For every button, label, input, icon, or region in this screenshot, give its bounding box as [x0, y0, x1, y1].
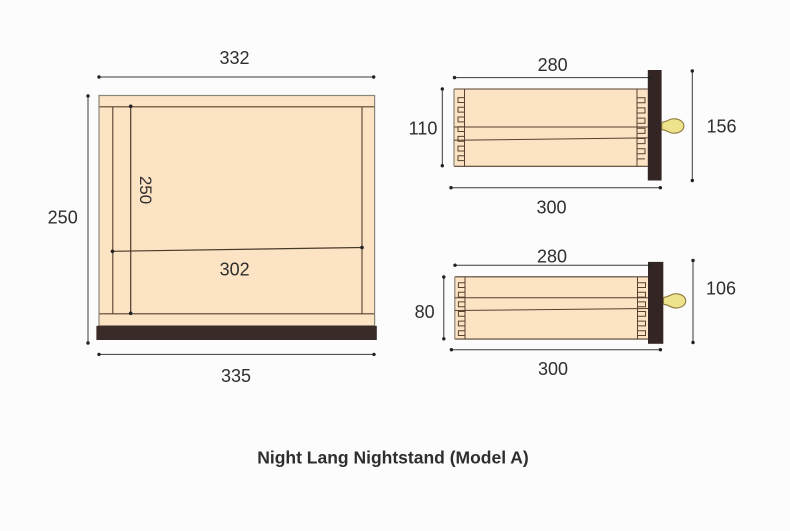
svg-text:156: 156 [706, 116, 736, 136]
svg-text:300: 300 [538, 359, 568, 379]
svg-text:280: 280 [537, 247, 567, 267]
svg-text:80: 80 [415, 302, 435, 322]
svg-text:332: 332 [219, 48, 249, 68]
svg-text:300: 300 [536, 198, 566, 218]
svg-text:250: 250 [136, 176, 155, 204]
svg-text:250: 250 [48, 208, 78, 228]
svg-text:Night Lang Nightstand (Model A: Night Lang Nightstand (Model A) [257, 448, 529, 468]
svg-text:106: 106 [706, 279, 736, 299]
svg-text:110: 110 [409, 119, 438, 139]
svg-text:280: 280 [538, 55, 568, 75]
svg-text:302: 302 [220, 259, 250, 279]
svg-text:335: 335 [221, 366, 251, 386]
